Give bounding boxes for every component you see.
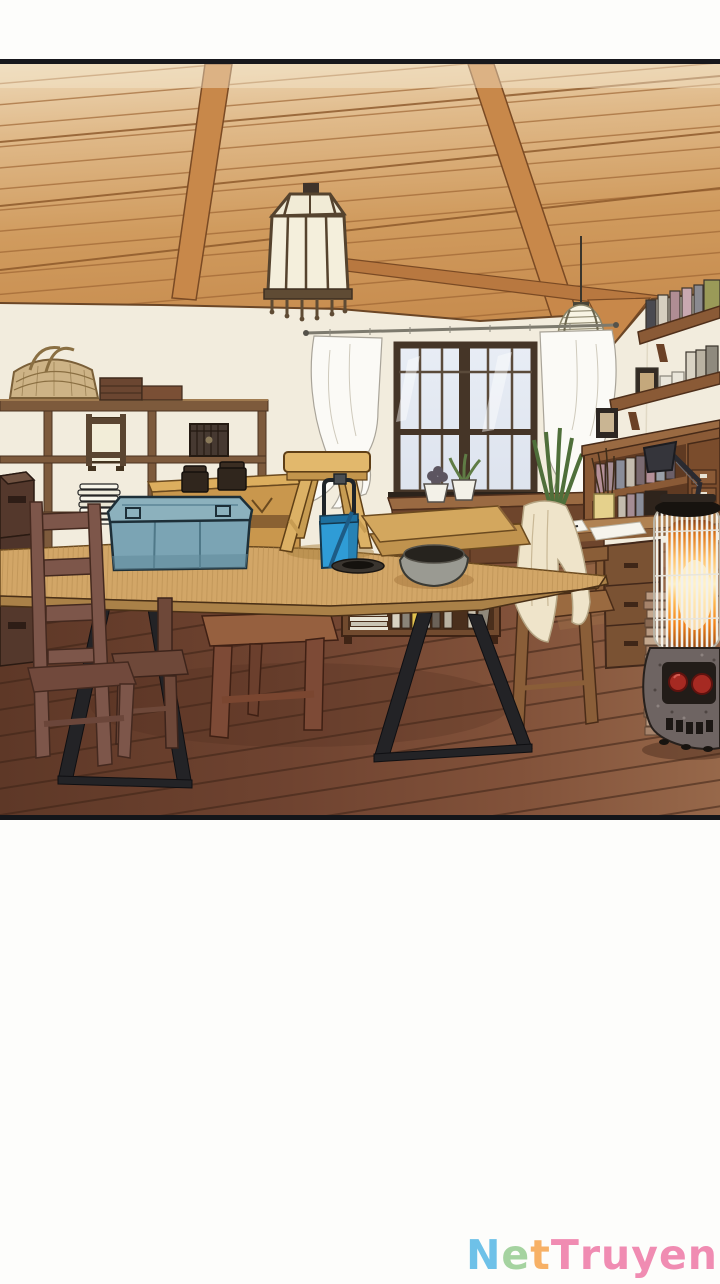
black-dish	[332, 559, 384, 573]
blue-storage-box	[108, 497, 252, 570]
wooden-chest	[190, 424, 228, 456]
comic-page: NetTruyen	[0, 0, 720, 1284]
panel-border-top	[0, 59, 720, 64]
panel-image	[0, 0, 720, 822]
shelf-lamp	[86, 414, 126, 471]
watermark: NetTruyen	[466, 1235, 718, 1276]
gray-bowl	[394, 545, 474, 589]
panel-border-bottom	[0, 815, 720, 820]
photo-frame	[596, 408, 618, 438]
kerosene-heater	[643, 494, 720, 752]
